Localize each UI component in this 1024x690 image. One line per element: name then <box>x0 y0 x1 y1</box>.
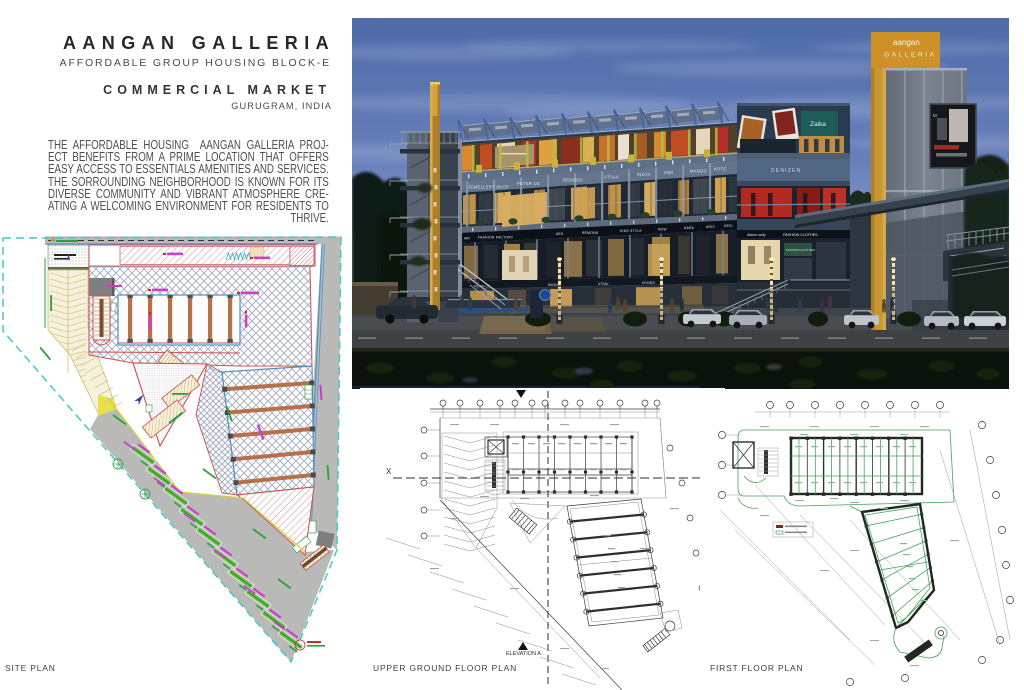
svg-text:KIDS STYLE: KIDS STYLE <box>620 229 643 233</box>
svg-text:Zaika: Zaika <box>810 121 826 128</box>
svg-text:FASHION CLOTHES: FASHION CLOTHES <box>786 248 815 252</box>
svg-text:REMOND: REMOND <box>563 178 583 183</box>
svg-text:DENIZEN: DENIZEN <box>771 168 801 174</box>
svg-text:INDYA: INDYA <box>637 172 651 177</box>
svg-text:PETER US: PETER US <box>517 181 540 186</box>
svg-text:FASHION CLOTHES: FASHION CLOTHES <box>783 233 818 237</box>
svg-text:JEWELLERY SHOP: JEWELLERY SHOP <box>468 184 509 189</box>
svg-text:AND: AND <box>664 170 674 175</box>
svg-text:M: M <box>933 113 937 118</box>
svg-text:UTSAV: UTSAV <box>598 282 609 286</box>
svg-text:AEK: AEK <box>556 232 564 236</box>
svg-text:GALLERIA: GALLERIA <box>884 52 936 59</box>
svg-text:NOW: NOW <box>658 227 668 231</box>
svg-text:KOTE: KOTE <box>714 167 726 172</box>
svg-text:AARA: AARA <box>684 226 695 230</box>
svg-text:ARIS: ARIS <box>706 225 715 229</box>
svg-text:MANGO: MANGO <box>690 168 707 173</box>
svg-text:X: X <box>386 467 392 476</box>
svg-text:DIVINER: DIVINER <box>642 281 656 285</box>
svg-text:Allene solly: Allene solly <box>747 233 766 237</box>
svg-text:WR: WR <box>464 236 470 240</box>
svg-text:UTSAV: UTSAV <box>604 175 619 180</box>
svg-text:DESI: DESI <box>724 224 733 228</box>
svg-text:ELEVATION A: ELEVATION A <box>506 651 541 657</box>
svg-text:FASHION FACTORY: FASHION FACTORY <box>478 236 514 240</box>
svg-text:REMOND: REMOND <box>582 231 599 235</box>
svg-text:aangan: aangan <box>893 38 920 47</box>
